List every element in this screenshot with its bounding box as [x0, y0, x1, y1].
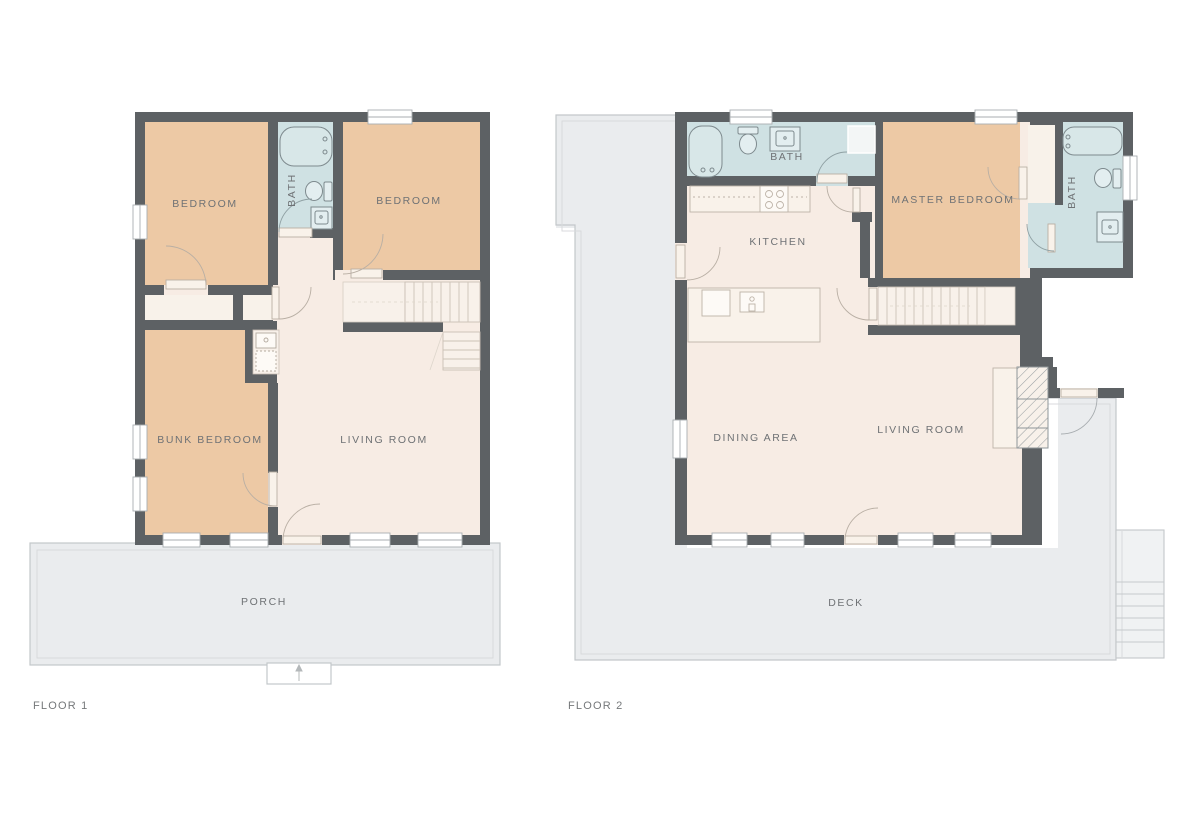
window [730, 110, 772, 124]
floor2-living-room-label: LIVING ROOM [877, 424, 965, 436]
floor2-kitchen-label: KITCHEN [749, 236, 806, 248]
floor1-utility-nook [253, 330, 279, 374]
floor2-title: FLOOR 2 [568, 700, 623, 712]
window [133, 425, 147, 459]
window [418, 533, 462, 547]
floor2-bath-top-label: BATH [770, 151, 804, 163]
floor2-master-bedroom-label: MASTER BEDROOM [891, 194, 1014, 206]
window [712, 533, 747, 547]
window [368, 110, 412, 124]
fireplace [993, 367, 1048, 448]
floor2-deck-label: DECK [828, 597, 864, 609]
window [133, 477, 147, 511]
window [1123, 156, 1137, 200]
floor2-stairs [878, 287, 1015, 325]
floor2-plan: BATH KITCHEN MASTER BEDROOM BATH DINING … [556, 110, 1164, 712]
floorplan-svg: BEDROOM BEDROOM BATH BUNK BEDROOM LIVING… [0, 0, 1200, 830]
stove-icon [760, 186, 788, 212]
window [133, 205, 147, 239]
toilet-icon [738, 127, 758, 154]
kitchen-island [688, 288, 820, 342]
bathtub-icon [689, 126, 722, 177]
sink-icon [1097, 212, 1123, 242]
kitchen-counter [690, 186, 810, 212]
sink-icon [770, 127, 800, 151]
deck-exterior-stairs [1116, 530, 1164, 658]
floor2-bath-right-label: BATH [1066, 175, 1078, 209]
nook-appliance-icon [256, 351, 276, 371]
sink-icon [311, 207, 332, 229]
floorplan-canvas: BEDROOM BEDROOM BATH BUNK BEDROOM LIVING… [0, 0, 1200, 830]
floor1-bath-label: BATH [286, 173, 298, 207]
floor1-porch [30, 543, 500, 684]
floor1-bedroom-right-label: BEDROOM [376, 195, 441, 207]
bath-shower [848, 126, 875, 153]
window [975, 110, 1017, 124]
floor1-living-room-label: LIVING ROOM [340, 434, 428, 446]
floor1-porch-label: PORCH [241, 596, 287, 608]
window [898, 533, 933, 547]
window [771, 533, 804, 547]
bathtub-icon [280, 127, 332, 166]
window [230, 533, 268, 547]
floor2-master-closet [1028, 125, 1055, 203]
toilet-icon [1095, 169, 1122, 189]
window [163, 533, 200, 547]
floor1-bedroom-closet [145, 295, 233, 320]
floor1-title: FLOOR 1 [33, 700, 88, 712]
window [350, 533, 390, 547]
window [673, 420, 687, 458]
bathtub-icon [1063, 127, 1122, 155]
floor1-bedroom-left-label: BEDROOM [172, 198, 237, 210]
toilet-icon [306, 182, 333, 202]
island-sink-icon [740, 292, 764, 312]
floor1-bunk-bedroom-label: BUNK BEDROOM [157, 434, 263, 446]
floor1-plan: BEDROOM BEDROOM BATH BUNK BEDROOM LIVING… [30, 110, 500, 712]
window [955, 533, 991, 547]
nook-sink-icon [256, 333, 276, 348]
floor2-dining-area-label: DINING AREA [713, 432, 798, 444]
